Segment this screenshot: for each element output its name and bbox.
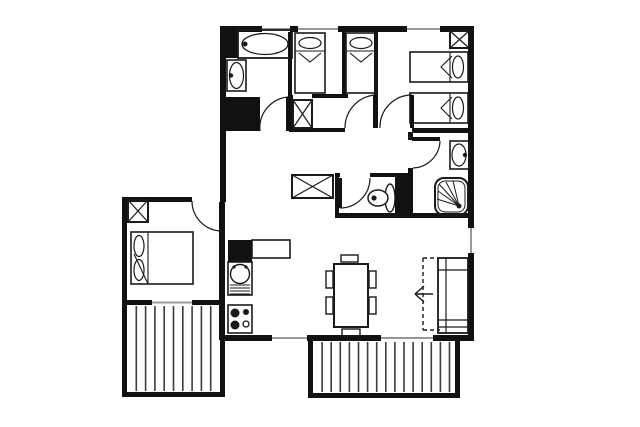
bathroom-door-swing-arc [260, 97, 288, 131]
wc-door-leaf [338, 178, 342, 208]
dining-chair [369, 271, 376, 288]
dining-chair [326, 297, 333, 314]
bathroom-sink-tap [229, 73, 233, 77]
alcove-door-swing-arc [345, 95, 375, 128]
shower-room-sink-tap [463, 153, 467, 157]
floor-plan-svg [0, 0, 640, 427]
bed-sheet-fold [299, 53, 321, 62]
shower-room-door-swing-arc [413, 141, 440, 168]
wall [122, 392, 225, 397]
dining-chair [341, 255, 358, 262]
wc-door-swing-arc [340, 178, 370, 208]
shower-drain [457, 204, 462, 209]
wall [122, 300, 152, 305]
bed-pillow [453, 56, 464, 78]
wall [370, 173, 412, 177]
bed-pillow [299, 38, 321, 49]
alcove-door-leaf [373, 95, 377, 128]
stove-burner [243, 309, 249, 315]
dining-chair [326, 271, 333, 288]
wall [312, 94, 348, 98]
bed-pillow [453, 97, 464, 119]
balcony-bottom [313, 341, 455, 393]
wall [412, 128, 468, 133]
dining-chair [369, 297, 376, 314]
wall-fill [228, 240, 252, 262]
wall [222, 335, 272, 341]
dining-table [334, 264, 368, 327]
shower-room-door-leaf [412, 137, 440, 141]
bed-pillow [350, 38, 372, 49]
stove [228, 305, 252, 333]
bathroom-door-leaf [286, 97, 290, 131]
kitchen-sink-tap [244, 265, 247, 268]
stove-burner [231, 309, 240, 318]
wall [433, 335, 474, 341]
floor-plan [0, 0, 640, 427]
sofa-bed [438, 258, 468, 333]
wall [220, 26, 226, 202]
kitchen-sink-tap [232, 265, 235, 268]
kitchen-counter [252, 240, 290, 258]
wall [219, 202, 225, 340]
wall [308, 341, 313, 398]
bedroom-right-door-swing-arc [380, 95, 412, 128]
stove-burner [243, 321, 249, 327]
stove-burner [231, 321, 240, 330]
bed-sheet-fold [350, 53, 372, 62]
wall [335, 173, 340, 177]
wall-fill [224, 97, 260, 131]
bed-pillow [134, 236, 144, 257]
wall [308, 393, 460, 398]
toilet-flush [371, 195, 376, 200]
dining-chair [342, 329, 360, 336]
bedroom-left-door-swing-arc [192, 201, 222, 231]
bathtub-tap [243, 42, 248, 47]
bed-pillow [134, 260, 144, 281]
wall [455, 341, 460, 398]
wall [122, 202, 127, 397]
toilet-bowl [368, 190, 388, 206]
bathtub-basin [242, 34, 288, 55]
double-bed [131, 232, 193, 284]
